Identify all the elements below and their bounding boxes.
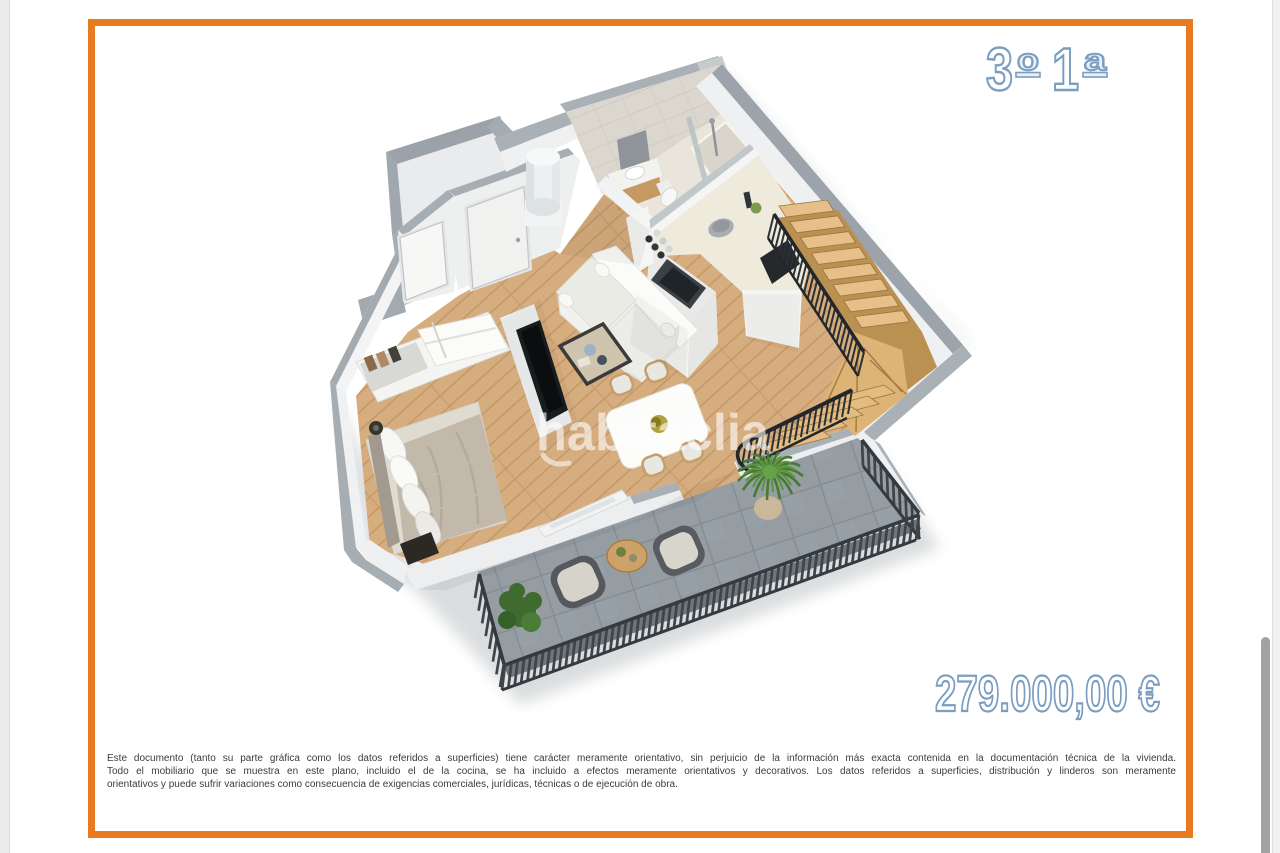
svg-text:1: 1 — [1052, 36, 1079, 103]
svg-text:habitaclia: habitaclia — [536, 404, 770, 462]
svg-text:279.000,00 €: 279.000,00 € — [935, 665, 1160, 722]
svg-text:3: 3 — [986, 36, 1013, 103]
